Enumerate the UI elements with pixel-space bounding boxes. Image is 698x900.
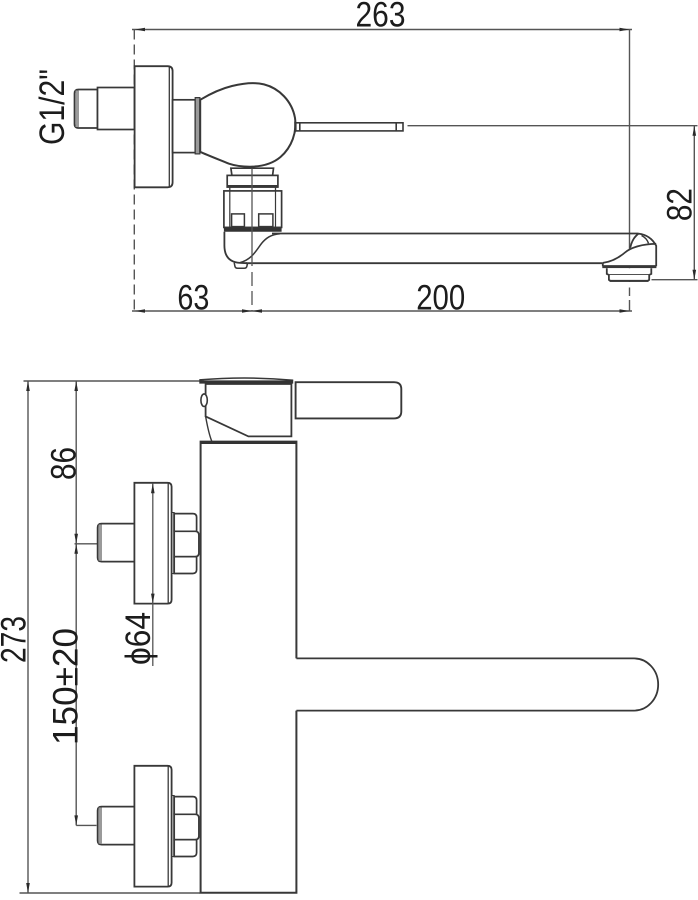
svg-text:63: 63 (177, 279, 209, 318)
svg-text:200: 200 (416, 279, 465, 318)
svg-text:ϕ64: ϕ64 (119, 612, 158, 665)
svg-text:82: 82 (661, 188, 698, 221)
svg-text:273: 273 (0, 616, 34, 663)
svg-text:150±20: 150±20 (47, 628, 86, 745)
svg-text:G1/2": G1/2" (33, 69, 72, 145)
svg-text:263: 263 (356, 0, 406, 35)
svg-text:86: 86 (45, 447, 84, 480)
